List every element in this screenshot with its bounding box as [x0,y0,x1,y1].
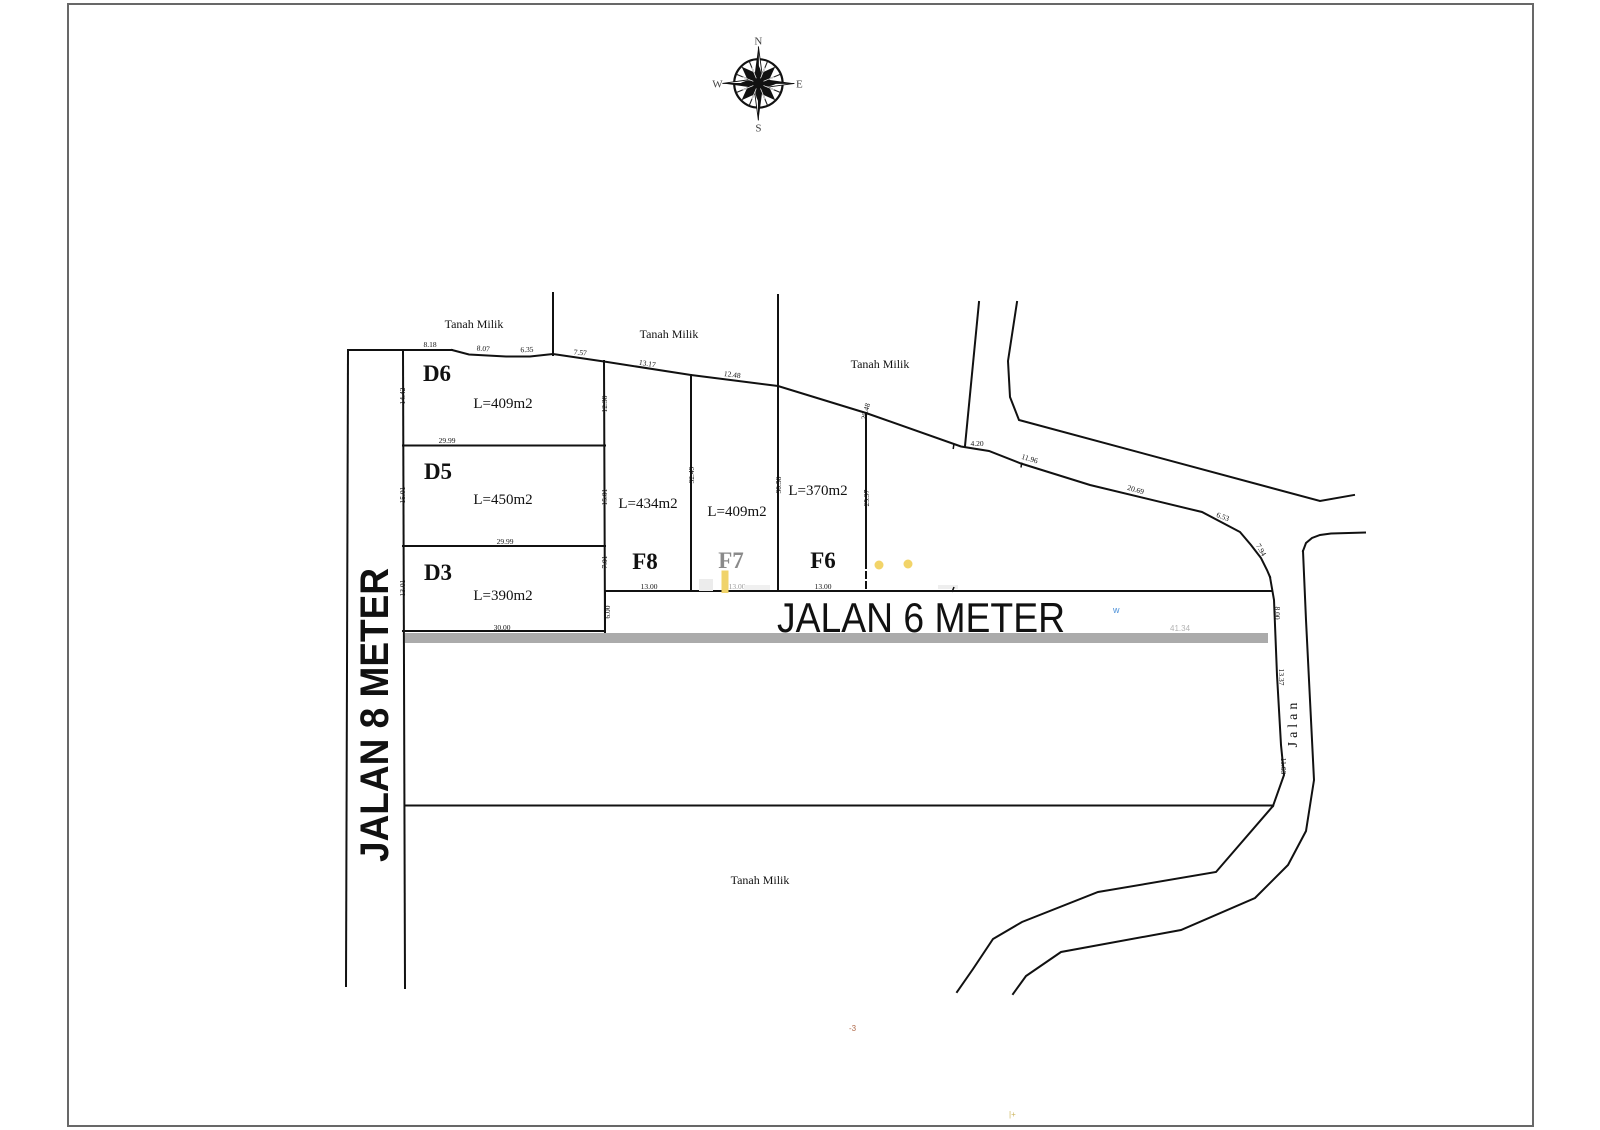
svg-text:Tanah Milik: Tanah Milik [851,357,910,371]
svg-text:13.00: 13.00 [815,582,832,591]
svg-text:13.00: 13.00 [729,582,746,591]
svg-text:L=390m2: L=390m2 [473,588,532,604]
svg-text:w: w [1112,605,1120,615]
svg-text:25.97: 25.97 [862,489,871,506]
svg-text:11.63: 11.63 [1279,758,1288,775]
svg-text:14.42: 14.42 [398,387,407,404]
svg-text:8.00: 8.00 [1273,606,1282,619]
svg-text:Tanah Milik: Tanah Milik [731,873,790,887]
svg-text:F8: F8 [632,549,658,574]
svg-text:Tanah Milik: Tanah Milik [445,317,504,331]
svg-text:S: S [755,122,761,134]
svg-text:D5: D5 [424,459,452,484]
svg-text:6.35: 6.35 [520,345,534,354]
svg-text:8.18: 8.18 [423,340,436,349]
svg-text:L=370m2: L=370m2 [788,483,847,499]
svg-text:13.00: 13.00 [641,582,658,591]
svg-text:7.01: 7.01 [600,555,609,568]
svg-text:N: N [754,35,762,47]
svg-text:8.07: 8.07 [476,343,490,353]
svg-text:12.38: 12.38 [600,395,609,412]
svg-text:D3: D3 [424,560,452,585]
svg-text:15.01: 15.01 [398,486,407,503]
svg-text:W: W [712,78,723,90]
svg-text:29.99: 29.99 [439,436,456,445]
svg-text:|+: |+ [1009,1110,1016,1119]
svg-text:JALAN 6 METER: JALAN 6 METER [777,594,1065,641]
svg-text:-3: -3 [849,1024,857,1033]
svg-text:41.34: 41.34 [1170,624,1191,633]
svg-text:JALAN 8 METER: JALAN 8 METER [353,568,397,862]
svg-text:32.49: 32.49 [687,466,696,483]
svg-text:4.20: 4.20 [970,439,983,448]
svg-text:L=450m2: L=450m2 [473,492,532,508]
svg-text:D6: D6 [423,361,451,386]
svg-text:L=434m2: L=434m2 [618,496,677,512]
svg-text:15.01: 15.01 [600,488,609,505]
svg-text:Tanah Milik: Tanah Milik [640,327,699,341]
svg-text:13.37: 13.37 [1277,669,1286,686]
svg-text:29.99: 29.99 [497,537,514,546]
svg-text:30.00: 30.00 [494,623,511,632]
svg-text:6.00: 6.00 [603,605,612,618]
svg-text:L=409m2: L=409m2 [707,504,766,520]
svg-text:L=409m2: L=409m2 [473,396,532,412]
svg-text:F6: F6 [810,548,836,573]
svg-text:30.58: 30.58 [774,476,783,493]
svg-text:7.57: 7.57 [573,347,587,357]
svg-text:Jalan: Jalan [1286,699,1301,748]
svg-text:F7: F7 [718,548,744,573]
svg-text:E: E [796,78,803,90]
svg-text:13.01: 13.01 [398,579,407,596]
